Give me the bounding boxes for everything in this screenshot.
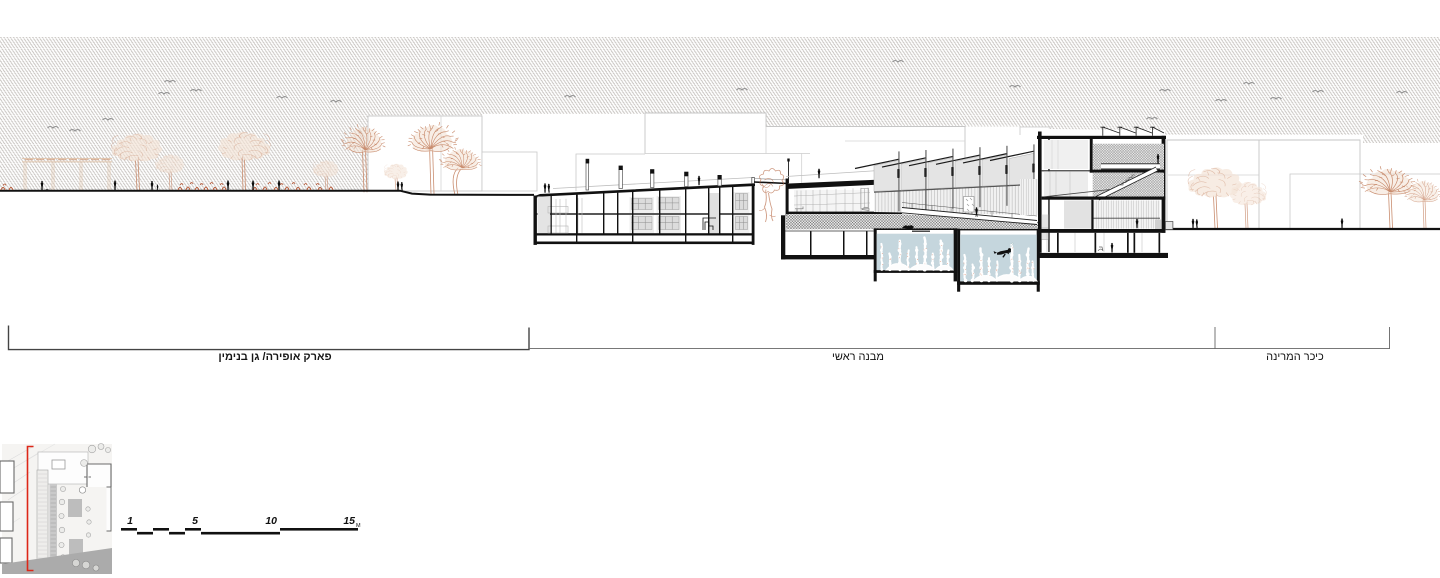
svg-text:1: 1 [127,515,133,527]
svg-text:מבנה ראשי: מבנה ראשי [832,351,884,363]
svg-text:פארק אופירה/ גן בנימין: פארק אופירה/ גן בנימין [218,351,331,363]
svg-text:5: 5 [192,515,198,527]
svg-text:10: 10 [265,515,277,527]
svg-text:M: M [356,523,361,529]
svg-text:15: 15 [343,515,355,527]
svg-text:כיכר המרינה: כיכר המרינה [1266,351,1324,363]
